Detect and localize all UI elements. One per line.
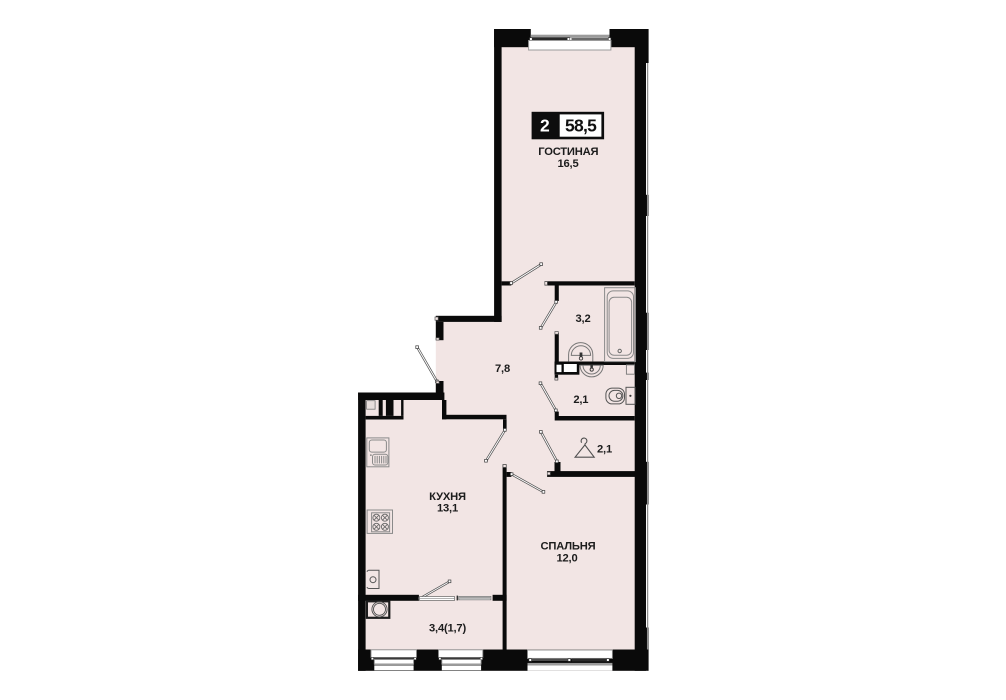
svg-text:3,2: 3,2 [576,313,591,325]
svg-text:КУХНЯ: КУХНЯ [429,491,466,503]
svg-text:16,5: 16,5 [558,158,579,170]
svg-text:2,1: 2,1 [573,394,588,406]
svg-text:12,0: 12,0 [557,552,578,564]
svg-text:СПАЛЬНЯ: СПАЛЬНЯ [541,540,596,552]
svg-text:2,1: 2,1 [597,444,612,456]
svg-text:7,8: 7,8 [495,363,510,375]
svg-text:3,4(1,7): 3,4(1,7) [429,622,466,634]
svg-text:58,5: 58,5 [565,116,597,136]
svg-text:2: 2 [540,116,550,136]
svg-text:13,1: 13,1 [437,503,458,515]
svg-text:ГОСТИНАЯ: ГОСТИНАЯ [538,146,598,158]
